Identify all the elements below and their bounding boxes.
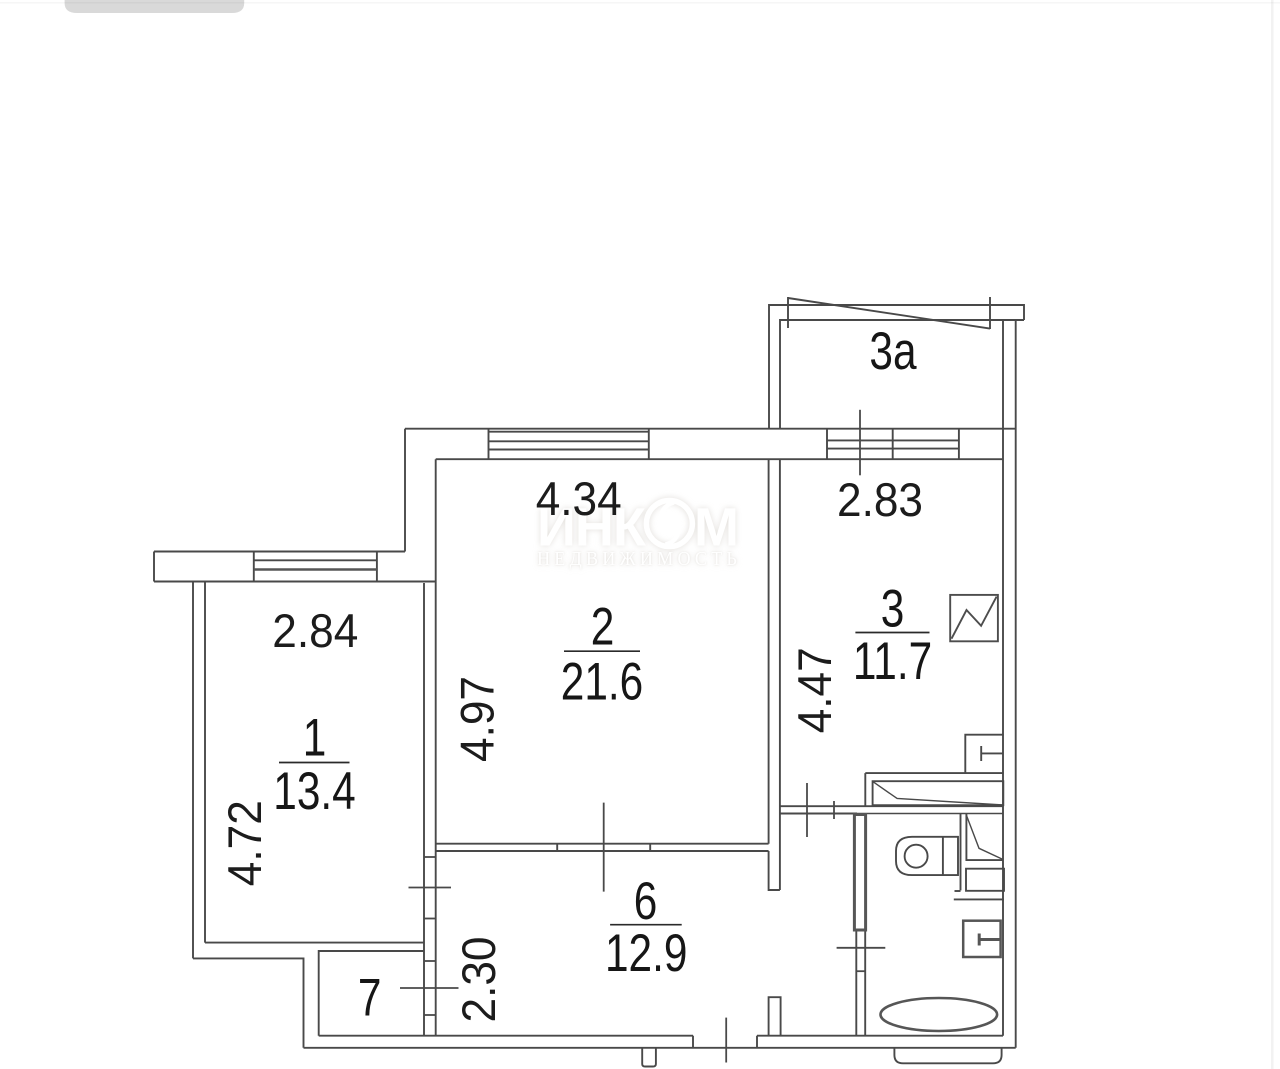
- svg-text:2.83: 2.83: [837, 474, 923, 527]
- svg-text:4.72: 4.72: [219, 800, 272, 886]
- svg-text:2.30: 2.30: [453, 937, 506, 1023]
- svg-text:4.47: 4.47: [789, 647, 842, 733]
- svg-text:3а: 3а: [869, 323, 916, 382]
- svg-text:3: 3: [881, 580, 905, 639]
- svg-text:4.34: 4.34: [536, 473, 622, 526]
- svg-text:2.84: 2.84: [272, 605, 358, 658]
- svg-text:4.97: 4.97: [451, 676, 504, 762]
- svg-text:2: 2: [591, 598, 615, 657]
- svg-text:11.7: 11.7: [853, 632, 932, 691]
- svg-text:НЕДВИЖИМОСТЬ: НЕДВИЖИМОСТЬ: [537, 548, 741, 570]
- svg-text:6: 6: [634, 873, 658, 932]
- svg-text:7: 7: [358, 969, 382, 1028]
- svg-text:1: 1: [303, 709, 327, 768]
- svg-text:12.9: 12.9: [605, 924, 688, 983]
- svg-text:21.6: 21.6: [561, 653, 644, 712]
- svg-text:13.4: 13.4: [273, 762, 356, 821]
